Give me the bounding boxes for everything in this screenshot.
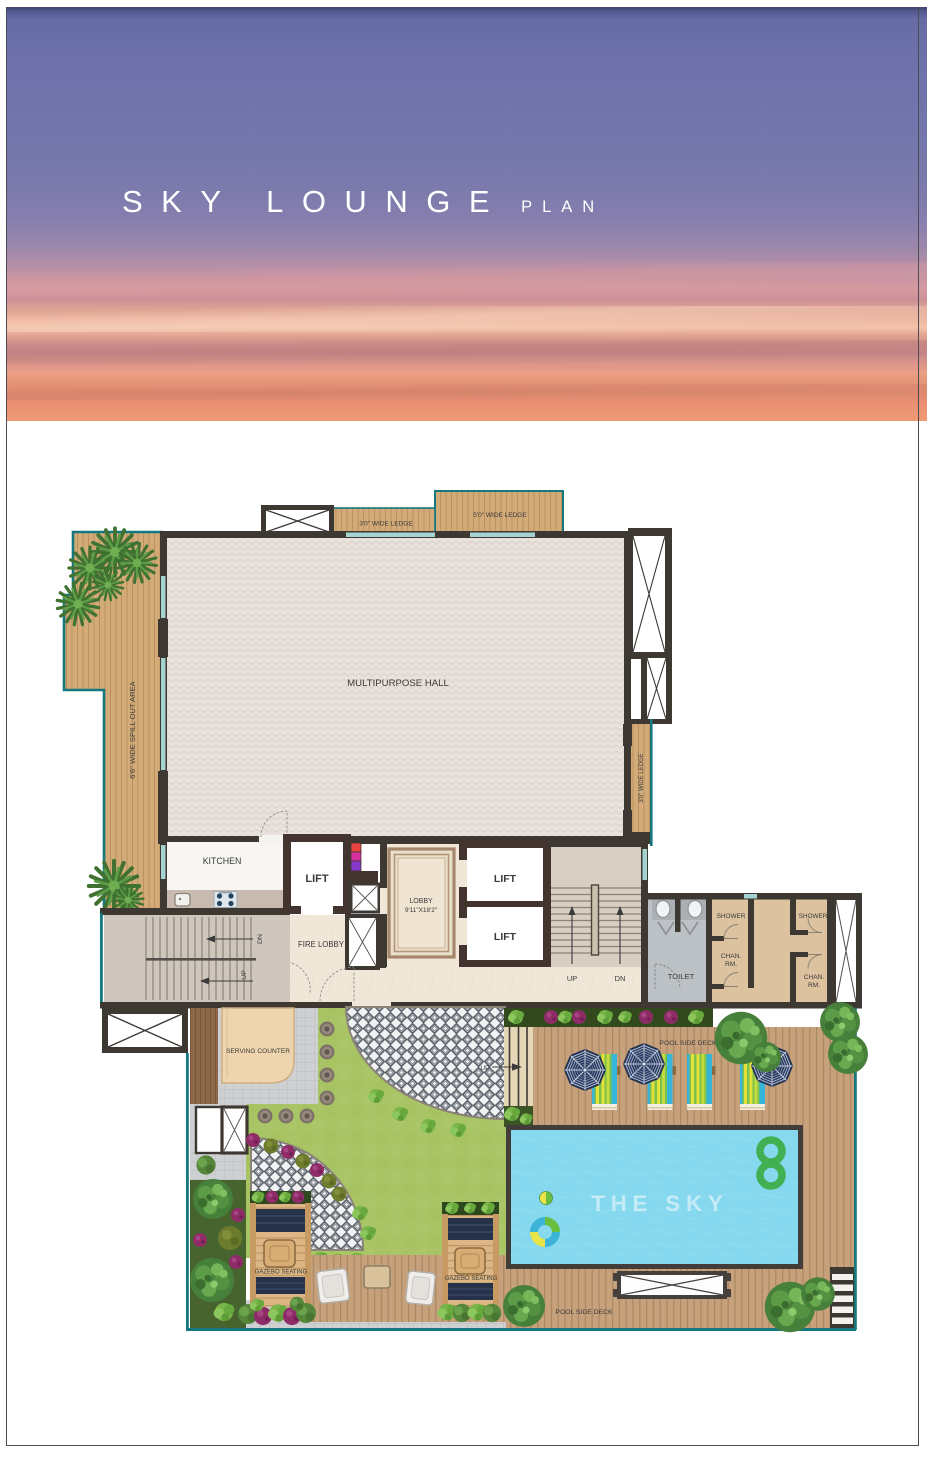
svg-text:6'6" WIDE SPILL OUT AREA: 6'6" WIDE SPILL OUT AREA [128, 680, 137, 778]
svg-text:POOL SIDE DECK: POOL SIDE DECK [555, 1309, 613, 1316]
svg-text:LIFT: LIFT [494, 931, 517, 943]
svg-text:FIRE LOBBY: FIRE LOBBY [298, 940, 345, 949]
svg-text:DN: DN [257, 934, 264, 944]
svg-text:LIFT: LIFT [494, 873, 517, 885]
svg-text:CHAN.: CHAN. [721, 953, 742, 960]
svg-text:RM.: RM. [725, 961, 737, 968]
svg-text:CHAN.: CHAN. [804, 974, 825, 981]
svg-text:KITCHEN: KITCHEN [203, 856, 242, 866]
svg-text:UP: UP [480, 1065, 490, 1072]
svg-text:UP: UP [241, 970, 248, 980]
svg-text:SHOWER: SHOWER [799, 913, 828, 920]
svg-text:RM.: RM. [808, 982, 820, 989]
svg-text:3'0" WIDE LEDGE: 3'0" WIDE LEDGE [359, 521, 413, 528]
svg-text:9'11"X18'2": 9'11"X18'2" [405, 907, 437, 914]
svg-text:5'0" WIDE LEDGE: 5'0" WIDE LEDGE [473, 512, 527, 519]
svg-text:LOBBY: LOBBY [409, 898, 433, 905]
svg-text:SERVING COUNTER: SERVING COUNTER [226, 1048, 290, 1055]
svg-text:TOILET: TOILET [668, 972, 695, 981]
svg-text:SHOWER: SHOWER [717, 913, 746, 920]
svg-text:3'0" WIDE LEDGE: 3'0" WIDE LEDGE [639, 753, 645, 802]
svg-text:LIFT: LIFT [305, 873, 328, 885]
svg-text:POOL SIDE DECK: POOL SIDE DECK [659, 1040, 717, 1047]
svg-text:UP: UP [567, 974, 577, 983]
svg-text:THE SKY: THE SKY [591, 1191, 728, 1216]
svg-text:GAZEBO SEATING: GAZEBO SEATING [445, 1276, 498, 1282]
svg-text:MULTIPURPOSE HALL: MULTIPURPOSE HALL [347, 678, 449, 689]
svg-text:GAZEBO SEATING: GAZEBO SEATING [255, 1270, 308, 1276]
svg-text:DN: DN [615, 974, 626, 983]
